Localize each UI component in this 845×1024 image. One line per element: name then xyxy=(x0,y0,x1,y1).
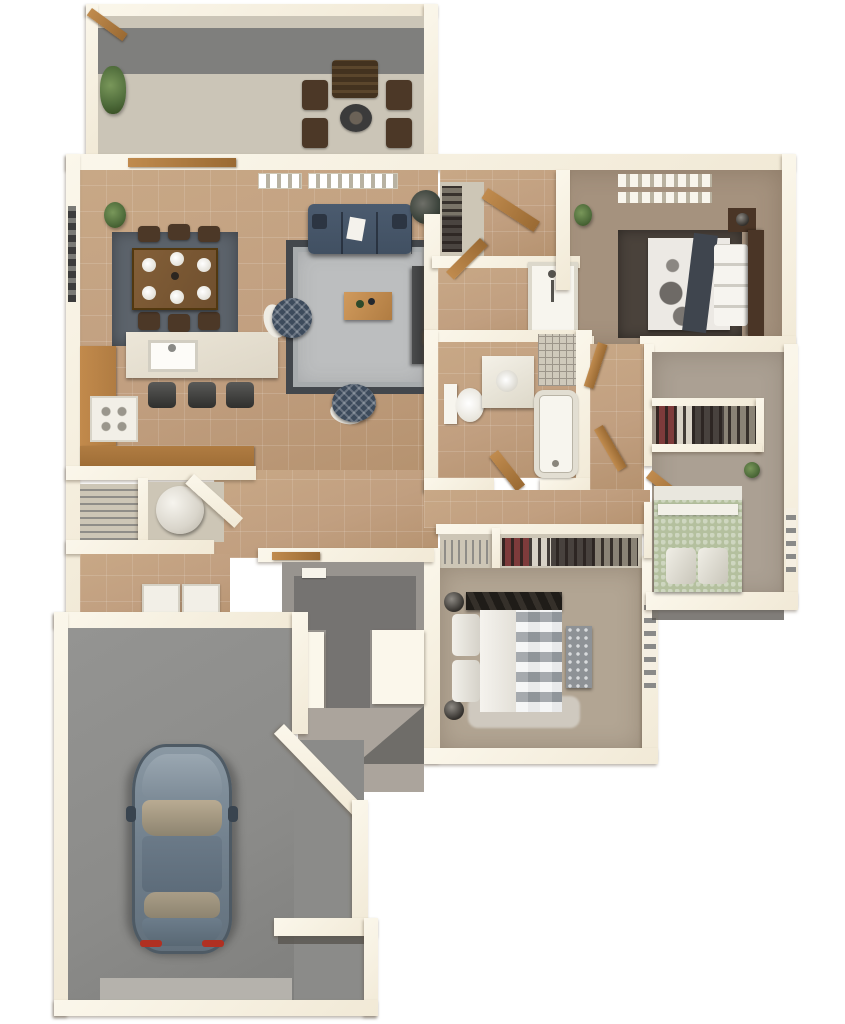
garage-wall-top xyxy=(54,612,306,628)
bed2-linen-closet xyxy=(444,540,490,564)
bed2-sheet xyxy=(480,610,516,712)
place-setting-3 xyxy=(197,258,211,272)
garage-interior-wall xyxy=(274,918,378,936)
garage-wall-right-upper xyxy=(292,612,308,734)
bar-stool-1 xyxy=(148,382,176,408)
bed2-closet-divider xyxy=(492,528,500,568)
bed3-wall-shadow xyxy=(652,610,784,620)
bar-stool-3 xyxy=(226,382,254,408)
bed2-plaid-blanket xyxy=(516,610,562,712)
dining-chair-2 xyxy=(168,224,190,240)
bed2-closet-clothes xyxy=(502,538,638,566)
bar-stool-2 xyxy=(188,382,216,408)
car xyxy=(126,744,238,958)
round-ottoman-bottom xyxy=(332,384,376,422)
bed3-closet-wall-bottom xyxy=(652,444,762,452)
left-wall-window xyxy=(68,206,76,302)
bed2-wall-bottom xyxy=(424,748,658,764)
patio-chair-4 xyxy=(386,118,412,148)
bed2-headboard xyxy=(466,592,562,610)
car-rear-window xyxy=(144,892,220,918)
car-taillight-right xyxy=(202,940,224,947)
car-windshield xyxy=(142,800,222,836)
dining-chair-4 xyxy=(138,312,160,330)
wall-kitchen-closets xyxy=(66,466,256,480)
dining-chair-6 xyxy=(198,312,220,330)
patio-wall-left xyxy=(86,4,98,156)
patio-chair-3 xyxy=(386,80,412,110)
bed2-pillow-1 xyxy=(452,614,480,656)
patio-slider-threshold xyxy=(128,158,236,167)
car-taillight-left xyxy=(140,940,162,947)
place-setting-5 xyxy=(170,290,184,304)
tub-drain xyxy=(552,460,559,467)
island-faucet xyxy=(168,344,176,352)
master-plant xyxy=(574,204,592,226)
toilet-bowl xyxy=(456,388,484,422)
bed2-lamp-top xyxy=(444,592,464,612)
patio-fire-pit xyxy=(340,104,372,132)
pantry-wire-shelving xyxy=(80,484,138,540)
dining-chair-3 xyxy=(198,226,220,242)
sofa-pillow-left xyxy=(312,214,327,229)
car-mirror-right xyxy=(228,806,238,822)
patio-plant xyxy=(100,66,126,114)
master-bottom-wall-right xyxy=(640,336,796,352)
bed3-pillow-2 xyxy=(698,548,728,584)
bed3-closet-clothes xyxy=(656,406,756,444)
bed3-headboard-bar xyxy=(658,504,738,515)
dining-chair-1 xyxy=(138,226,160,242)
dining-centerpiece xyxy=(171,272,179,280)
master-closet-clothes xyxy=(442,186,462,252)
bed3-closet-wall-top xyxy=(652,398,762,406)
bed2-lamp-bottom xyxy=(444,700,464,720)
car-hood xyxy=(142,754,222,798)
bed2-pillow-2 xyxy=(452,660,480,702)
place-setting-4 xyxy=(142,286,156,300)
foyer-tile-floor xyxy=(214,470,438,558)
wall-bath-masterbed xyxy=(556,170,570,290)
bed2-wall-left xyxy=(424,548,440,762)
patio-wall-top xyxy=(86,4,438,16)
coffee-table-decor-1 xyxy=(356,300,364,308)
shower-head xyxy=(548,270,556,278)
garage-door-apron xyxy=(100,978,292,1002)
bed3-plant xyxy=(744,462,760,478)
bed2-closet-back-wall xyxy=(436,524,648,534)
porch-pillar-right xyxy=(372,630,424,704)
garage-wall-left xyxy=(54,612,68,1016)
tiled-shower xyxy=(538,334,576,386)
master-window-1 xyxy=(618,174,712,187)
bed3-top-band xyxy=(654,486,742,500)
living-window-2 xyxy=(308,173,398,189)
car-roof xyxy=(142,836,222,892)
pantry-divider-wall xyxy=(138,478,148,544)
dining-corner-plant xyxy=(104,202,126,228)
garage-wall-bottom xyxy=(54,1000,378,1016)
living-window-1 xyxy=(258,173,302,189)
round-ottoman-left xyxy=(272,298,312,338)
shower-bar xyxy=(551,280,554,302)
sofa-pillow-right xyxy=(392,214,407,229)
hallbath-wall-left xyxy=(424,330,438,492)
bed3-window xyxy=(786,508,796,572)
master-headboard xyxy=(748,230,764,336)
front-door-threshold xyxy=(272,552,320,560)
wall-closets-laundry xyxy=(66,540,214,554)
place-setting-2 xyxy=(170,252,184,266)
garage-interior-wall-shadow xyxy=(278,936,374,944)
patio-chair-2 xyxy=(302,118,328,148)
patio-wall-right xyxy=(424,4,438,164)
master-bed-pillows xyxy=(714,244,748,326)
exterior-wall-right-master xyxy=(782,154,796,352)
garage-wall-right-lower xyxy=(352,800,368,930)
place-setting-6 xyxy=(197,286,211,300)
coffee-table-decor-2 xyxy=(368,298,375,305)
porch-vent xyxy=(302,568,326,578)
place-setting-1 xyxy=(142,258,156,272)
hall-tile-horizontal xyxy=(424,490,650,528)
bed3-pillow-1 xyxy=(666,548,696,584)
master-lamp-top xyxy=(736,213,749,226)
dining-chair-5 xyxy=(168,314,190,332)
bed3-wall-bottom xyxy=(646,592,798,610)
porch-walkway-top xyxy=(294,576,416,630)
master-window-2 xyxy=(618,192,712,203)
range-burners xyxy=(98,404,130,434)
floor-plan-scene xyxy=(0,0,845,1024)
patio-chair-1 xyxy=(302,80,328,110)
car-mirror-left xyxy=(126,806,136,822)
vanity-sink xyxy=(496,370,518,392)
coffee-table xyxy=(344,292,392,320)
bed2-foot-bench xyxy=(566,626,592,688)
patio-loveseat xyxy=(332,60,378,98)
